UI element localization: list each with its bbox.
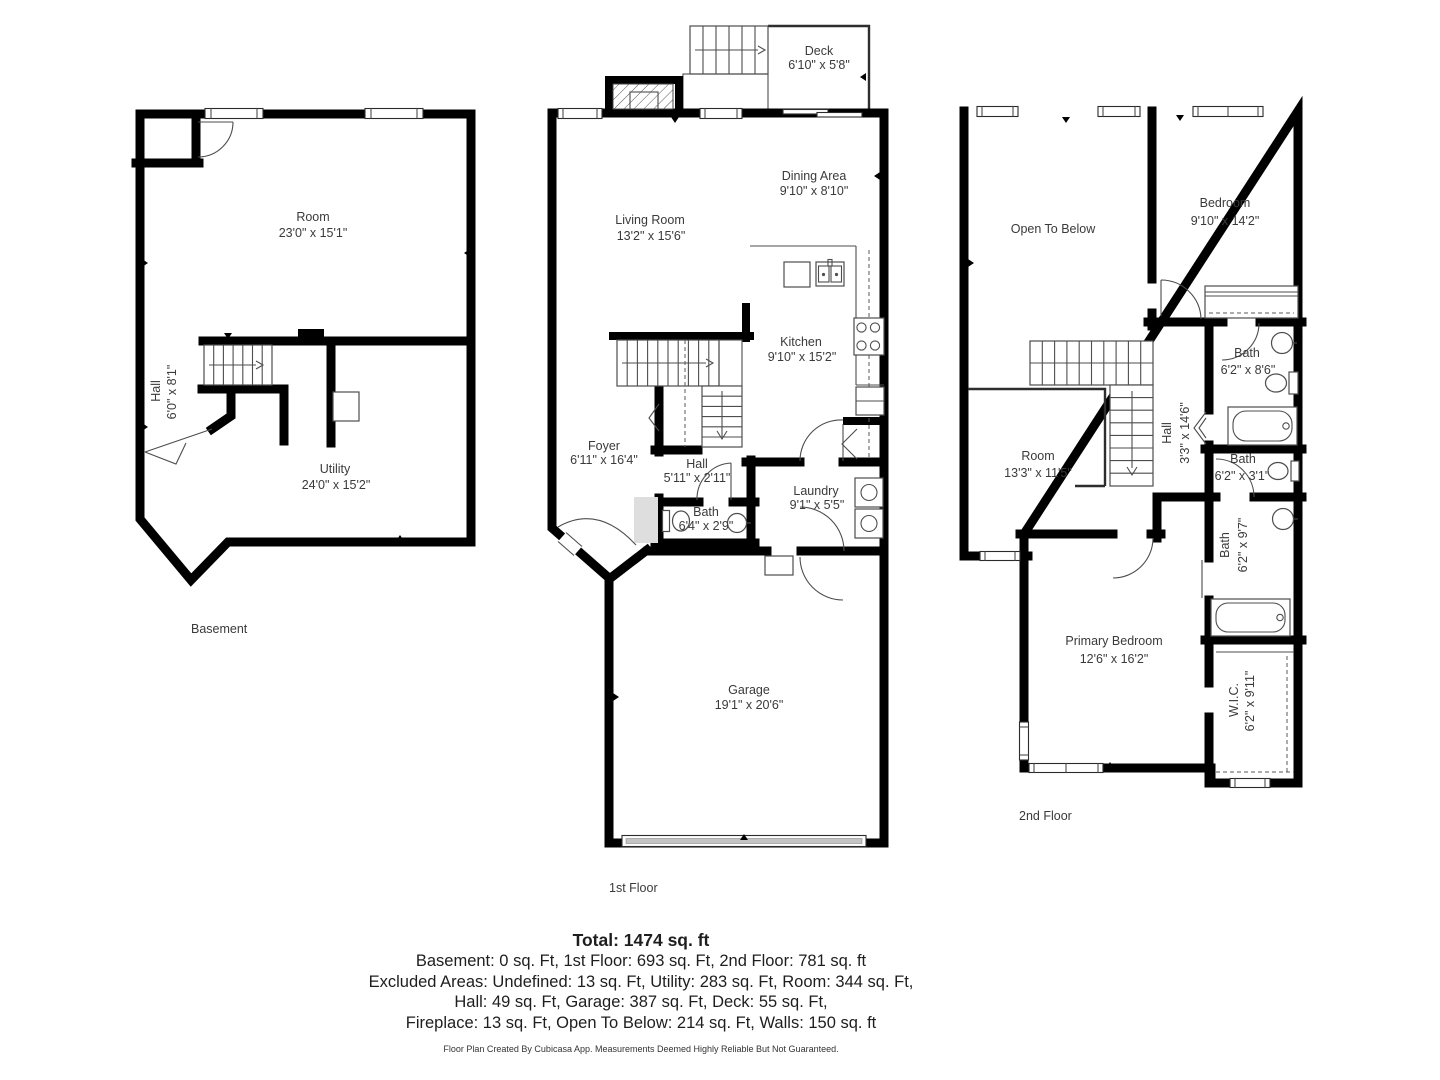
total-area: Total: 1474 sq. ft bbox=[0, 929, 1282, 951]
entry-step bbox=[765, 556, 793, 575]
floor-label-basement: Basement bbox=[191, 622, 248, 636]
room-label: W.I.C. bbox=[1227, 683, 1241, 717]
room-label: Laundry bbox=[793, 484, 839, 498]
room-label: Bath bbox=[1218, 532, 1232, 558]
room-dims: 9'10" x 15'2" bbox=[768, 350, 837, 364]
summary-line: Fireplace: 13 sq. Ft, Open To Below: 214… bbox=[0, 1013, 1282, 1034]
summary-line: Hall: 49 sq. Ft, Garage: 387 sq. Ft, Dec… bbox=[0, 992, 1282, 1013]
room-label: Bath bbox=[1230, 452, 1256, 466]
dryer bbox=[855, 509, 883, 538]
room-dims: 6'0" x 8'1" bbox=[165, 365, 179, 420]
toilet-tank bbox=[1289, 372, 1298, 394]
fireplace bbox=[613, 84, 673, 109]
room-dims: 3'3" x 14'6" bbox=[1178, 402, 1192, 464]
room-dims: 5'11" x 2'11" bbox=[664, 471, 731, 485]
room-label: Bath bbox=[693, 505, 719, 519]
room-label: Dining Area bbox=[782, 169, 847, 183]
summary-line: Basement: 0 sq. Ft, 1st Floor: 693 sq. F… bbox=[0, 951, 1282, 972]
area-summary: Total: 1474 sq. ft Basement: 0 sq. Ft, 1… bbox=[0, 929, 1282, 1033]
room-dims: 9'1" x 5'5" bbox=[790, 498, 845, 512]
room-label: Hall bbox=[686, 457, 708, 471]
room-dims: 6'2" x 9'11" bbox=[1243, 671, 1257, 732]
sink bbox=[1273, 509, 1294, 530]
main-stairs bbox=[617, 340, 742, 447]
stove bbox=[854, 318, 884, 355]
basement-walls bbox=[136, 114, 471, 580]
kitchen-sink bbox=[816, 260, 844, 287]
room-dims: 9'10" x 14'2" bbox=[1191, 214, 1260, 228]
room-label: Living Room bbox=[615, 213, 684, 227]
fridge bbox=[856, 387, 884, 415]
room-dims: 12'6" x 16'2" bbox=[1080, 652, 1149, 666]
room-dims: 6'11" x 16'4" bbox=[570, 453, 638, 467]
toilet-tank bbox=[663, 511, 670, 532]
floor-plan-page: { "basement": { "floor_label": "Basement… bbox=[0, 0, 1440, 1080]
room-label: Hall bbox=[1160, 422, 1174, 444]
room-label: Bedroom bbox=[1200, 196, 1251, 210]
first-floor-plan: Deck 6'10" x 5'8" Living Room 13'2" x 15… bbox=[552, 26, 884, 895]
kitchen-island bbox=[784, 262, 810, 287]
floor-label-second: 2nd Floor bbox=[1019, 809, 1072, 823]
washer bbox=[855, 478, 883, 507]
room-dims: 23'0" x 15'1" bbox=[279, 226, 348, 240]
laundry-fixtures bbox=[855, 478, 883, 538]
summary-line: Excluded Areas: Undefined: 13 sq. Ft, Ut… bbox=[0, 972, 1282, 993]
room-dims: 6'4" x 2'9" bbox=[679, 519, 734, 533]
room-dims: 13'3" x 11'5" bbox=[1004, 466, 1072, 480]
room-label: Bath bbox=[1234, 346, 1260, 360]
basement-ticks bbox=[142, 249, 470, 541]
utility-fixture bbox=[333, 392, 359, 421]
room-label: Deck bbox=[805, 44, 834, 58]
room-dims: 24'0" x 15'2" bbox=[302, 478, 371, 492]
basement-plan: Room 23'0" x 15'1" Hall 6'0" x 8'1" Util… bbox=[136, 109, 471, 637]
second-floor-stairs bbox=[1030, 341, 1153, 486]
room-label: Garage bbox=[728, 683, 770, 697]
disclaimer: Floor Plan Created By Cubicasa App. Meas… bbox=[0, 1044, 1282, 1054]
sink bbox=[1272, 333, 1293, 354]
room-label: Room bbox=[296, 210, 329, 224]
room-dims: 13'2" x 15'6" bbox=[617, 229, 686, 243]
room-label: Kitchen bbox=[780, 335, 822, 349]
room-label: Foyer bbox=[588, 439, 620, 453]
floor-plan-drawing: Room 23'0" x 15'1" Hall 6'0" x 8'1" Util… bbox=[0, 0, 1440, 1080]
room-label: Open To Below bbox=[1011, 222, 1097, 236]
room-dims: 6'2" x 9'7" bbox=[1236, 518, 1250, 573]
bedroom-closet bbox=[1205, 286, 1298, 318]
room-label: Primary Bedroom bbox=[1065, 634, 1162, 648]
room-dims: 6'2" x 3'1" bbox=[1215, 469, 1270, 483]
basement-doors bbox=[145, 122, 233, 464]
slider-door bbox=[817, 113, 862, 118]
room-dims: 9'10" x 8'10" bbox=[780, 184, 849, 198]
room-dims: 19'1" x 20'6" bbox=[715, 698, 784, 712]
bath-fixtures-2f bbox=[1211, 333, 1299, 637]
room-label: Hall bbox=[149, 380, 163, 402]
toilet-tank bbox=[1291, 461, 1299, 481]
room-dims: 6'10" x 5'8" bbox=[788, 58, 850, 72]
room-label: Room bbox=[1021, 449, 1054, 463]
bathtub bbox=[1211, 599, 1290, 636]
room-dims: 6'2" x 8'6" bbox=[1221, 363, 1276, 377]
room-label: Utility bbox=[320, 462, 351, 476]
toilet-bowl bbox=[1268, 463, 1288, 480]
entry-closet bbox=[634, 497, 658, 543]
basement-stairs bbox=[204, 345, 272, 385]
floor-label-first: 1st Floor bbox=[609, 881, 658, 895]
second-floor-plan: Open To Below Bedroom 9'10" x 14'2" Bath… bbox=[964, 107, 1302, 824]
bathtub bbox=[1228, 407, 1297, 445]
